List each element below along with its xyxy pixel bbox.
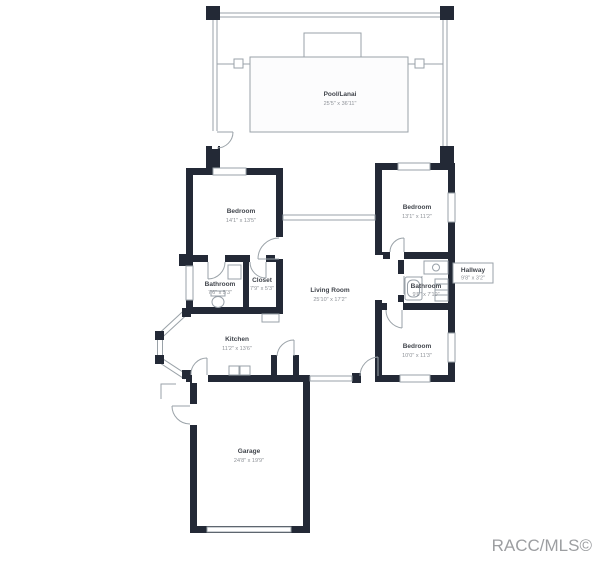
window-bathroom-w bbox=[186, 266, 193, 300]
door-bathroom-w bbox=[208, 262, 225, 279]
room-label-bathroom-e: Bathroom bbox=[411, 283, 442, 290]
room-dims-bathroom-w: 7'6" x 5'3" bbox=[208, 290, 232, 296]
kitchen-appliance-right bbox=[240, 366, 250, 375]
entry-closet-jamb-right bbox=[293, 355, 299, 375]
porch-edge bbox=[310, 376, 352, 381]
door-swings bbox=[172, 238, 422, 424]
floor-plan-svg: Hallway 9'8" x 3'2" Pool/Lanai 25'5" x 3… bbox=[0, 0, 600, 563]
room-dims-closet: 7'9" x 5'3" bbox=[250, 286, 274, 292]
screen-door-swing bbox=[217, 132, 233, 148]
room-label-bedroom-master: Bedroom bbox=[227, 208, 256, 215]
gap-hallway-opening bbox=[374, 255, 383, 300]
gap-bedroom-master-door bbox=[275, 237, 284, 259]
room-label-pool-lanai: Pool/Lanai bbox=[324, 91, 357, 98]
lanai-enclosure bbox=[206, 6, 454, 170]
gap-garage-side-door bbox=[189, 404, 198, 425]
lanai-post-se bbox=[440, 146, 454, 165]
sink-basin-e bbox=[433, 264, 440, 271]
door-entry-closet bbox=[277, 340, 294, 356]
window-bedroom-ne-right bbox=[448, 193, 455, 222]
room-label-bedroom-se: Bedroom bbox=[403, 343, 432, 350]
lanai-post-nw bbox=[206, 6, 220, 20]
bay-corner-post-4 bbox=[182, 370, 191, 379]
room-dims-bedroom-ne: 13'1" x 11'2" bbox=[402, 214, 432, 220]
gap-bedroom-se-door bbox=[387, 302, 403, 311]
wall-garage-right bbox=[303, 375, 310, 533]
garage-door bbox=[207, 527, 291, 532]
room-label-bathroom-w: Bathroom bbox=[205, 281, 236, 288]
kitchen-appliance-left bbox=[229, 366, 239, 375]
room-dims-bathroom-e: 9'6" x 7'10" bbox=[412, 292, 439, 298]
bay-corner-post-3 bbox=[155, 355, 164, 364]
room-dims-hallway: 9'8" x 3'2" bbox=[461, 276, 485, 282]
window-bedroom-ne-top bbox=[398, 163, 430, 170]
kitchen-bay-window bbox=[155, 308, 191, 379]
bay-window-glass bbox=[160, 312, 186, 377]
window-bedroom-master bbox=[213, 168, 246, 175]
window-bedroom-se-bottom bbox=[400, 375, 430, 382]
room-dims-bedroom-master: 14'1" x 13'5" bbox=[226, 218, 256, 224]
bay-corner-post-2 bbox=[155, 331, 164, 340]
room-label-living: Living Room bbox=[310, 287, 350, 294]
window-bedroom-se-right bbox=[448, 333, 455, 362]
lanai-post-sw bbox=[206, 146, 220, 170]
wall-closet-living-divider bbox=[276, 259, 283, 314]
room-label-closet: Closet bbox=[252, 277, 273, 284]
room-dims-bedroom-se: 10'0" x 11'3" bbox=[402, 353, 432, 359]
watermark: RACC/MLS© bbox=[492, 536, 593, 555]
screen-door-gap bbox=[212, 131, 218, 149]
hallway-callout: Hallway 9'8" x 3'2" bbox=[453, 263, 493, 283]
room-label-kitchen: Kitchen bbox=[225, 336, 249, 343]
room-dims-garage: 24'8" x 19'9" bbox=[234, 458, 264, 464]
door-closet bbox=[250, 262, 266, 278]
lanai-screen-wall-top bbox=[213, 13, 447, 17]
room-label-hallway: Hallway bbox=[461, 267, 486, 274]
wall-garage-left bbox=[190, 382, 197, 526]
pantry-vent-box bbox=[262, 314, 279, 322]
spa-equipment-pad bbox=[304, 33, 361, 58]
sink-fixture-w bbox=[228, 265, 241, 279]
door-gaps bbox=[189, 237, 405, 425]
gutter-mark bbox=[161, 384, 176, 399]
gap-bathroom-w-door bbox=[208, 254, 225, 263]
door-bedroom-ne bbox=[390, 238, 404, 252]
room-label-garage: Garage bbox=[238, 448, 261, 455]
bay-corner-post-1 bbox=[182, 308, 191, 317]
floor-plan-image: Hallway 9'8" x 3'2" Pool/Lanai 25'5" x 3… bbox=[0, 0, 600, 563]
door-garage-side bbox=[172, 406, 190, 424]
gap-bedroom-ne-door bbox=[390, 251, 404, 260]
wall-bath-kitchen-divider bbox=[186, 307, 283, 314]
lanai-screen-wall-right bbox=[443, 13, 447, 157]
sliding-door-lanai bbox=[283, 215, 375, 220]
room-dims-kitchen: 11'2" x 13'6" bbox=[222, 346, 252, 352]
lanai-post-marker-left bbox=[234, 59, 243, 68]
door-kitchen-garage bbox=[191, 358, 207, 375]
room-label-bedroom-ne: Bedroom bbox=[403, 204, 432, 211]
gap-kitchen-garage-door bbox=[192, 374, 208, 383]
wall-bath-closet-divider bbox=[243, 262, 249, 307]
door-bedroom-se bbox=[386, 310, 402, 328]
room-dims-living: 25'10" x 17'2" bbox=[313, 297, 346, 303]
lanai-post-ne bbox=[440, 6, 454, 20]
entry-closet-jamb-left bbox=[271, 355, 277, 375]
room-dims-pool-lanai: 25'5" x 36'11" bbox=[324, 101, 357, 107]
lanai-post-marker-right bbox=[415, 59, 424, 68]
toilet-bowl-w bbox=[212, 297, 224, 308]
